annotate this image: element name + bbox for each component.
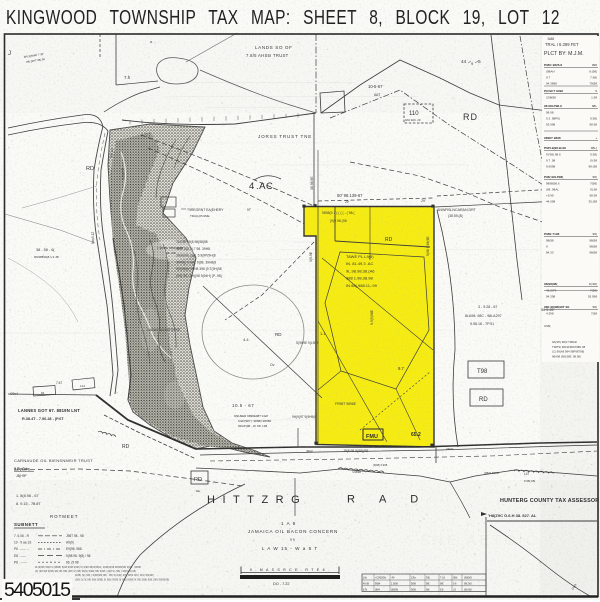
svg-text:9(98.98. 9(8) / 98: 9(98.98. 9(8) / 98 [66, 554, 91, 558]
svg-text:RD: RD [86, 166, 94, 172]
svg-text:9.7: 9.7 [546, 76, 551, 80]
svg-text:98A98 (98L98E .98.98): 98A98 (98L98E .98.98) [552, 354, 581, 358]
svg-text:8.9(: 8.9( [363, 588, 367, 591]
svg-text:9(98( (9( (98( ( 9(98(98( 9: 9(98( (9( (98( ( 9(98(98( 98( . 98( 9(,9… [75, 573, 154, 577]
svg-text:9: 9 [595, 89, 597, 93]
svg-text:4: 4 [249, 181, 255, 192]
svg-text:P(C9CT 9498: P(C9CT 9498 [544, 89, 563, 93]
svg-text:1 A 9: 1 A 9 [281, 521, 296, 526]
svg-text:P98C 9826.8: P98C 9826.8 [544, 63, 562, 67]
svg-text:9Y98(.98.6: 9Y98(.98.6 [546, 153, 561, 157]
svg-text:JAMAICA OIL BACON CONCERN: JAMAICA OIL BACON CONCERN [248, 529, 338, 534]
svg-text:RAD: RAD [347, 494, 442, 506]
svg-text:HITTZRG: HITTZRG [207, 494, 307, 506]
svg-text:(98(9(9: (98(9(9 [464, 577, 472, 580]
svg-text:3 - 9.28 - 67: 3 - 9.28 - 67 [478, 305, 497, 309]
svg-text:RD: RD [275, 332, 282, 337]
svg-text:7(98): 7(98) [590, 182, 597, 186]
svg-text:9.9(9(98E: 9.9(9(98E [370, 309, 374, 325]
svg-text:TRAL I 6.399 FET: TRAL I 6.399 FET [545, 42, 579, 47]
svg-text:A9(9): A9(9) [66, 541, 74, 545]
svg-text:9.3 .98P9): 9.3 .98P9) [546, 117, 560, 121]
svg-text:9 ByGdq: 9 ByGdq [14, 467, 30, 471]
svg-text:96. (9 98: 96. (9 98 [66, 560, 79, 564]
svg-text:(C) 98(A8 984 98P98T98): (C) 98(A8 984 98P98T98) [552, 350, 584, 354]
svg-text:Ov: Ov [270, 363, 275, 367]
svg-text:7.98): 7.98) [590, 76, 597, 80]
svg-text:98(.9(9: 98(.9(9 [464, 583, 472, 586]
svg-text:9(.98(: 9(.98( [589, 282, 598, 286]
svg-text:P9PL9(98.9L98: P9PL9(98.9L98 [544, 146, 566, 150]
svg-text:9897 8(8 9(.7 98. 39H8.: 9897 8(8 9(.7 98. 39H8. [176, 247, 211, 251]
svg-text:9898(98.6: 9898(98.6 [546, 182, 560, 186]
svg-text:98(98: 98(98 [546, 239, 554, 243]
svg-text:10.5 - 67: 10.5 - 67 [232, 403, 254, 408]
svg-text:TAWE PL.L9(9): TAWE PL.L9(9) [346, 254, 374, 259]
svg-text:9L.98.98.38.(A6: 9L.98.98.38.(A6 [346, 268, 375, 273]
svg-text:TRA(L(PL9ME: TRA(L(PL9ME [190, 214, 210, 218]
svg-text:9898Y 9898: 9898Y 9898 [544, 136, 561, 140]
svg-text:9(98 9.98(9E: 9(98 9.98(9E [426, 236, 430, 256]
svg-text:9.7: 9.7 [398, 366, 404, 371]
svg-text:'H8(Z9C O.6.H 38. 527. AL: 'H8(Z9C O.6.H 38. 527. AL [488, 513, 537, 518]
svg-text:39H8(( 9.H(8. 9(98. 39H8(8: 39H8(( 9.H(8. 9(98. 39H8(8 [176, 260, 216, 264]
svg-text:9(98: 9(98 [411, 588, 416, 591]
svg-text:FR98T 9898E: FR98T 9898E [335, 402, 357, 406]
svg-text:98.98: 98.98 [589, 194, 597, 198]
svg-text:98(98(98(: 98(98(98( [544, 282, 558, 286]
svg-text:'A88: 'A88 [547, 37, 554, 41]
svg-text:P6 . ----- ...: P6 . ----- ... [14, 547, 30, 551]
svg-text:9aw9.1Z: 9aw9.1Z [91, 232, 95, 244]
svg-text:8. 9.15 - 78.8T: 8. 9.15 - 78.8T [16, 502, 41, 506]
svg-text:A6T: A6T [374, 93, 381, 97]
svg-text:9 - M A S S R C E . R T E 6: 9 - M A S S R C E . R T E 6 . [250, 568, 330, 572]
svg-text:9(.98: 9(.98 [590, 188, 597, 192]
svg-text:84.33: 84.33 [546, 251, 554, 255]
svg-text:a.: a. [150, 40, 153, 44]
svg-text:39(H(98( (9(8. 5.9(9P(9H(8: 39(H(98( (9(8. 5.9(9P(9H(8 [176, 254, 216, 258]
svg-text:98.(98: 98.(98 [588, 165, 597, 169]
svg-text:(98 .98A(.: (98 .98A(. [546, 188, 559, 192]
svg-text:RD: RD [385, 237, 393, 243]
svg-text:ROTMEET: ROTMEET [50, 514, 78, 519]
svg-text:1.98: 1.98 [591, 96, 597, 100]
svg-text:4.398: 4.398 [546, 312, 554, 316]
svg-text:R.38.4T - 7.96.28 - (P.6T: R.38.4T - 7.96.28 - (P.6T [22, 417, 64, 421]
svg-text:PLCT BY: M.J.M.: PLCT BY: M.J.M. [544, 51, 584, 57]
svg-text:S.9w9.E: S.9w9.E [121, 168, 125, 180]
svg-text:98.98: 98.98 [546, 111, 554, 115]
svg-text:9(9H9ER 9898E98T 9.EP: 9(9H9ER 9898E98T 9.EP [234, 414, 268, 418]
svg-text:9898(9.7 ( ( ( ( - ( 98.(: 9898(9.7 ( ( ( ( - ( 98.( [322, 211, 355, 215]
svg-text:9.98(.98(: 9.98(.98( [524, 479, 535, 483]
svg-text:RN98899(8.1.9 JB: RN98899(8.1.9 JB [34, 255, 59, 259]
svg-text:10 - 9 aa 1S: 10 - 9 aa 1S [14, 541, 31, 545]
svg-text:(98(9.6998: (98(9.6998 [484, 471, 499, 475]
svg-text:J: J [8, 51, 11, 57]
svg-text:1.1: 1.1 [320, 331, 326, 336]
svg-text:S(9H9E 9(L9H9: S(9H9E 9(L9H9 [296, 341, 319, 345]
svg-text:9.6998: 9.6998 [546, 165, 556, 169]
svg-text:50' 98.139-67: 50' 98.139-67 [337, 193, 363, 198]
svg-text:(9(9( 9( 9( 98( 9(8( 9(98(: (9(9( 9( 9( 98( 9(8( 9(98( 9( 9(8( 9(98(… [75, 577, 169, 581]
svg-text:RD: RD [122, 444, 130, 450]
svg-text:94.398: 94.398 [546, 295, 556, 299]
svg-text:(9H(.98.L9H((98 9(94H( (P-.98(: (9H(.98.L9H((98 9(94H( (P-.98( [176, 274, 223, 278]
svg-text:(984: (984 [375, 588, 380, 591]
svg-text:C98(: C98( [544, 324, 551, 328]
svg-text:4.4: 4.4 [243, 337, 249, 342]
svg-text:1. 8(8.98 - 67: 1. 8(8.98 - 67 [16, 494, 39, 498]
svg-text:IN. 81.49.3 .AC: IN. 81.49.3 .AC [346, 261, 373, 266]
svg-text:.AC: .AC [256, 181, 273, 192]
svg-text:98.98: 98.98 [589, 123, 597, 127]
svg-text:7-L8: 7-L8 [440, 577, 445, 580]
svg-text:D9(: D9( [426, 577, 430, 580]
svg-text:29': 29' [421, 199, 426, 203]
svg-text:98(: 98( [440, 583, 444, 586]
svg-text:9.98.18 - 7P.91: 9.98.18 - 7P.91 [470, 322, 494, 326]
svg-text:7.67: 7.67 [56, 381, 62, 385]
svg-text:29': 29' [345, 200, 350, 204]
svg-text:RD: RD [463, 112, 478, 122]
svg-text:49.98: 49.98 [363, 583, 370, 586]
svg-text:RD: RD [194, 477, 202, 483]
svg-text:3(9.9E: 3(9.9E [309, 251, 313, 262]
svg-text:98L): 98L) [591, 146, 597, 150]
svg-text:98 98LP98.9: 98 98LP98.9 [544, 104, 562, 108]
svg-text:TAC98 99(8 98(98(98: TAC98 99(8 98(98(98 [176, 240, 208, 244]
svg-text:97': 97' [247, 208, 252, 212]
svg-text:9A(SP(.98(2 T98AR: 9A(SP(.98(2 T98AR [552, 340, 577, 344]
svg-text:HUNTERG COUNTY TAX ASSESSOR: HUNTERG COUNTY TAX ASSESSOR [500, 498, 599, 504]
svg-text:98-.(98.: 98-.(98. [166, 251, 177, 255]
svg-text:44: 44 [461, 59, 467, 65]
svg-text:9.98): 9.98) [590, 117, 597, 121]
svg-text:'L9898: 'L9898 [352, 470, 361, 474]
svg-text:9(98: 9(98 [411, 583, 416, 586]
svg-text:(98(98: (98(98 [391, 588, 399, 591]
svg-text:79(98: 79(98 [589, 82, 597, 86]
svg-text:JORSS TRUST TNE: JORSS TRUST TNE [258, 134, 312, 139]
svg-text:8a(: 8a( [196, 489, 200, 493]
svg-text:(9HH(: (9HH( [306, 449, 313, 453]
svg-text:E9(98. 988: E9(98. 988 [66, 547, 82, 551]
svg-text:(9.98: (9.98 [590, 159, 597, 163]
svg-text:P8 . ------: P8 . ------ [14, 560, 27, 564]
svg-text:9H(9(9T 9(9H9(8: 9H(9(9T 9(9H9(8 [292, 415, 316, 419]
svg-text:9(9(98)9( 39H8 398 (9.T(9H(98: 9(9(98)9( 39H8 398 (9.T(9H(98 [176, 267, 222, 271]
svg-text:C9v4: C9v4 [10, 392, 18, 396]
svg-text:(9(98( 6.998: (9(98( 6.998 [373, 463, 388, 467]
svg-text:LANDS SO OF: LANDS SO OF [255, 45, 293, 50]
svg-text:FMU: FMU [366, 434, 378, 440]
svg-text:98L: 98L [592, 104, 597, 108]
svg-text:(38.59.(8(: (38.59.(8( [448, 214, 464, 218]
svg-text:8LA98. 98C - 98LA297: 8LA98. 98C - 98LA297 [465, 314, 502, 318]
svg-text:98(98: 98(98 [589, 245, 597, 249]
svg-text:J98T 98 . 98: J98T 98 . 98 [66, 534, 84, 538]
svg-text:SUBNETT: SUBNETT [14, 522, 38, 527]
svg-text:98(: 98( [426, 588, 430, 591]
svg-text:5: 5 [478, 59, 481, 65]
svg-text:988 1.98.38.98: 988 1.98.38.98 [346, 276, 373, 281]
svg-text:94.3898: 94.3898 [546, 82, 557, 86]
svg-text:9584: 9584 [375, 583, 381, 586]
svg-text:35.(98: 35.(98 [588, 200, 597, 204]
svg-text:LANNES GOT 67. 8819N LNT: LANNES GOT 67. 8819N LNT [18, 408, 80, 413]
svg-text:ANWRSLNCARAN DRT: ANWRSLNCARAN DRT [437, 208, 477, 212]
svg-text:+: + [595, 136, 597, 140]
svg-text:1.9(98: 1.9(98 [391, 583, 398, 586]
svg-text:10-5-67: 10-5-67 [368, 84, 383, 89]
svg-text:IN.98(.988.11-.99: IN.98(.988.11-.99 [346, 283, 378, 288]
svg-text:P98E 7198: P98E 7198 [544, 232, 560, 236]
svg-text:38.98.9E: 38.98.9E [310, 176, 314, 190]
svg-text:9RAP(98 - W. 9P. L98: 9RAP(98 - W. 9P. L98 [238, 424, 267, 428]
svg-text:98(98: 98(98 [589, 239, 597, 243]
svg-text:098: 098 [592, 63, 597, 67]
svg-text:(98AH: (98AH [546, 70, 555, 74]
svg-text:+9.99: +9.99 [546, 194, 554, 198]
svg-text:E8 . -----: E8 . ----- [14, 554, 26, 558]
svg-text:44.098: 44.098 [546, 200, 556, 204]
svg-text:P98( 98LP98(: P98( 98LP98( [544, 175, 564, 179]
svg-text:T9REGRNT EA(EHERY: T9REGRNT EA(EHERY [187, 208, 224, 212]
svg-text:93.998: 93.998 [588, 295, 598, 299]
svg-text:L47: L47 [524, 472, 530, 476]
svg-text:L A W 15 - W a 5 T: L A W 15 - W a 5 T [262, 546, 318, 551]
svg-text:(9( (98 9(8 9(98( 98( 98 (9: (9( (98 9(8 9(98( 98( 98 (98( (98( 9( (9… [35, 569, 136, 573]
svg-text:DO - 7.22: DO - 7.22 [273, 582, 289, 586]
svg-text:C98(98: C98(98 [546, 96, 556, 100]
svg-text:9 9: 9 9 [290, 538, 295, 542]
svg-text:7.h: 7.h [124, 75, 131, 80]
svg-text:C9(+: C9(+ [411, 577, 417, 580]
svg-text:+C99G(9s: +C99G(9s [375, 577, 387, 580]
svg-text:J9(8 98 9(98((98: J9(8 98 9(98((98 [343, 449, 368, 453]
svg-text:9L(9(98( 98(8 9 (9898( 8(98 9: 9L(9(98( 98(8 9 (9898( 8(98 9(98 9(98) 9… [35, 565, 141, 569]
svg-text:(98.9(8: (98.9(8 [464, 588, 472, 591]
svg-text:65.2: 65.2 [411, 432, 421, 438]
svg-text:A9H9(: A9H9( [446, 447, 453, 451]
svg-text:50.5.2E: 50.5.2E [541, 308, 555, 312]
svg-text:9A6 9A6 .29: 9A6 9A6 .29 [405, 118, 421, 122]
svg-text:7. 6.06 - R: 7. 6.06 - R [14, 534, 30, 538]
svg-text:7.8/5 AHS5I TRUST: 7.8/5 AHS5I TRUST [246, 53, 289, 58]
svg-text:38 - 58 - 6(: 38 - 58 - 6( [36, 248, 55, 252]
svg-text:(98(: (98( [453, 577, 457, 580]
svg-text:93.998: 93.998 [546, 123, 556, 127]
svg-text:9.98): 9.98) [590, 153, 597, 157]
svg-text:9.(98): 9.(98) [589, 70, 597, 74]
svg-text:(9(9.98.(98: (9(9.98.(98 [330, 219, 347, 223]
svg-text:T98T9( 98L9F98AT98N 98: T98T9( 98L9F98AT98N 98 [552, 345, 586, 349]
svg-text:7(98: 7(98 [591, 312, 597, 316]
svg-text:RD: RD [479, 397, 488, 403]
svg-text:9.7 .98: 9.7 .98 [546, 159, 556, 163]
svg-text:98(98: 98(98 [589, 251, 597, 255]
svg-text:CARNAUDE OIL BIENSNMEIR TRUST: CARNAUDE OIL BIENSNMEIR TRUST [14, 458, 93, 463]
svg-text:GARH8' W (98H?(9H(E: GARH8' W (98H?(9H(E [147, 328, 180, 332]
svg-text:110: 110 [409, 111, 419, 117]
svg-text:J8(H9P: J8(H9P [16, 474, 27, 478]
svg-text:98(: 98( [426, 583, 430, 586]
svg-text:9.EP(98Y): 98983 98986: 9.EP(98Y): 98983 98986 [238, 419, 271, 423]
svg-text:T98: T98 [477, 369, 488, 375]
